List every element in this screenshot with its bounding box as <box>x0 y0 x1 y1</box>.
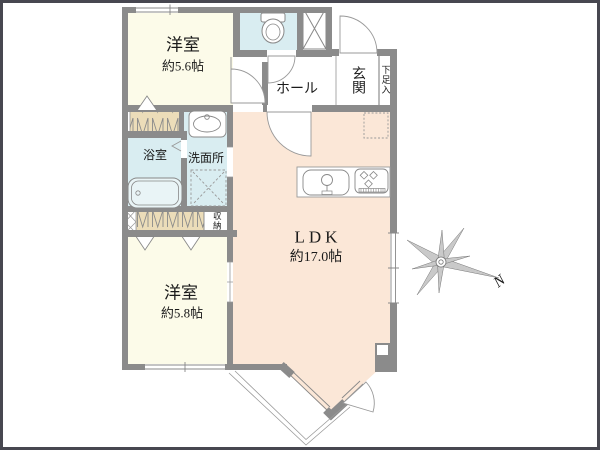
bedroom1-door-arc <box>231 69 265 103</box>
kitchen-sink-icon <box>303 170 349 195</box>
floorplan-drawing <box>0 0 600 450</box>
washroom-label: 洗面所 <box>188 152 224 164</box>
ldk-label: LDK <box>295 229 342 246</box>
entrance-label: 玄関 <box>350 66 364 94</box>
hall-label: ホール <box>276 83 318 97</box>
entrance-door-arc <box>340 16 377 53</box>
bathtub-icon <box>128 178 182 208</box>
floorplan: 洋室 約5.6帖 ホール 玄関 下足入 浴室 洗面所 収納 洋室 約5.8帖 L… <box>0 0 600 450</box>
bathroom-label: 浴室 <box>143 149 167 161</box>
washbasin-icon <box>189 111 226 137</box>
bedroom2-size-label: 約5.8帖 <box>161 307 203 320</box>
bedroom1-size-label: 約5.6帖 <box>162 60 204 73</box>
shoe-storage-label: 下足入 <box>381 65 390 95</box>
bedroom1-label: 洋室 <box>166 37 200 54</box>
toilet-door-arc <box>268 56 295 83</box>
gas-stove-icon <box>355 169 388 193</box>
toilet-icon <box>261 13 285 43</box>
closet-lower <box>136 210 204 233</box>
ldk-size-label: 約17.0帖 <box>290 251 343 265</box>
compass-icon <box>407 228 499 295</box>
bedroom2-label: 洋室 <box>164 285 198 302</box>
closet-upper <box>130 111 180 134</box>
storage-label: 収納 <box>213 212 222 231</box>
pipe-shaft-icon <box>303 8 326 49</box>
